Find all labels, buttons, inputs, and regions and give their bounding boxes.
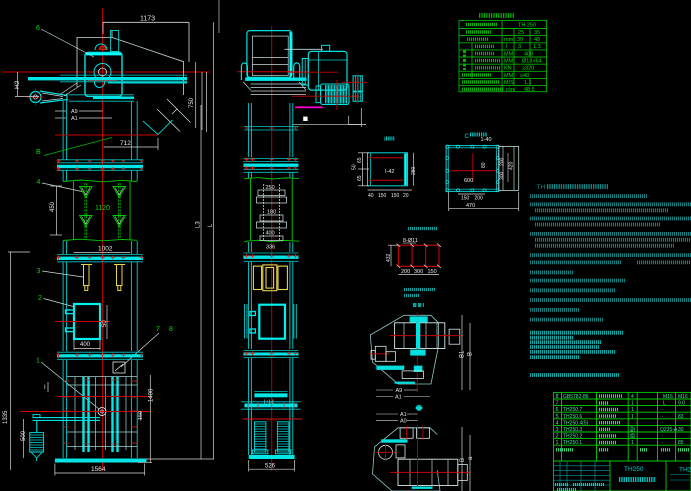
- svg-text:l: l: [506, 44, 507, 50]
- svg-text:180: 180: [267, 210, 276, 216]
- svg-text:≥320: ≥320: [522, 66, 534, 72]
- svg-text:400: 400: [80, 342, 91, 348]
- svg-text:6: 6: [36, 25, 40, 32]
- svg-text:250: 250: [266, 185, 275, 191]
- svg-text:A9: A9: [71, 109, 78, 115]
- svg-text:65: 65: [357, 157, 363, 163]
- svg-text:1: 1: [36, 358, 40, 365]
- svg-text:1.1: 1.1: [524, 80, 532, 86]
- svg-text:9.0: 9.0: [678, 401, 685, 407]
- svg-text:Ø18×64: Ø18×64: [522, 59, 542, 65]
- svg-text:TH250.6: TH250.6: [563, 414, 582, 420]
- svg-text:TH250.4(5): TH250.4(5): [563, 420, 589, 426]
- svg-text:··: ··: [660, 440, 664, 446]
- svg-text:1002: 1002: [98, 246, 113, 253]
- svg-text:470: 470: [466, 203, 475, 209]
- svg-text:1.3: 1.3: [533, 44, 541, 50]
- svg-text:M16: M16: [663, 394, 673, 400]
- svg-text:B: B: [468, 352, 474, 356]
- svg-text:5: 5: [556, 414, 559, 420]
- svg-text:1-40: 1-40: [481, 137, 492, 143]
- svg-text:7: 7: [556, 401, 559, 407]
- svg-text:8: 8: [169, 326, 173, 333]
- svg-text:1400: 1400: [149, 388, 155, 402]
- svg-text:150: 150: [428, 269, 437, 275]
- svg-text:组: 组: [630, 433, 635, 440]
- svg-text:TH: TH: [537, 184, 546, 191]
- svg-text:30: 30: [517, 37, 523, 43]
- svg-text:200: 200: [475, 196, 484, 202]
- svg-text:··: ··: [660, 420, 664, 426]
- svg-text:500: 500: [21, 430, 27, 441]
- svg-text:MM: MM: [504, 73, 514, 79]
- svg-text:1564: 1564: [91, 466, 106, 473]
- svg-text:83: 83: [678, 414, 684, 420]
- svg-text:6: 6: [556, 407, 559, 413]
- svg-text:30: 30: [678, 427, 684, 433]
- svg-text:25: 25: [518, 30, 524, 36]
- svg-text:3: 3: [518, 44, 521, 50]
- svg-text:336: 336: [266, 245, 275, 251]
- svg-text:MM: MM: [504, 51, 514, 57]
- svg-text:450: 450: [50, 201, 56, 212]
- svg-text:280: 280: [411, 166, 417, 175]
- svg-text:I: I: [384, 136, 386, 143]
- svg-text:A1: A1: [71, 116, 78, 122]
- svg-text:··: ··: [660, 407, 664, 413]
- svg-text:L3: L3: [196, 221, 202, 228]
- svg-text:C: C: [465, 134, 470, 140]
- svg-text:85: 85: [678, 440, 684, 446]
- svg-text:B: B: [460, 458, 466, 462]
- svg-text:712: 712: [120, 140, 131, 147]
- svg-text:r/mi: r/mi: [506, 87, 515, 93]
- svg-text:2: 2: [38, 295, 42, 302]
- svg-text:GB5782-86: GB5782-86: [563, 394, 589, 400]
- svg-text:4: 4: [631, 394, 634, 400]
- svg-text:7: 7: [156, 326, 160, 333]
- svg-text:B1: B1: [460, 350, 466, 358]
- svg-text:mm: mm: [504, 37, 514, 43]
- svg-text:1: 1: [631, 401, 634, 407]
- svg-text:TH250.7: TH250.7: [563, 407, 582, 413]
- svg-text:1: 1: [631, 440, 634, 446]
- svg-text:TH250.2: TH250.2: [563, 434, 582, 440]
- svg-text:600: 600: [464, 178, 473, 184]
- svg-text:KN: KN: [504, 66, 512, 72]
- svg-text:4: 4: [37, 179, 41, 186]
- svg-text:150: 150: [378, 193, 387, 199]
- svg-text:TH2: TH2: [679, 467, 691, 474]
- svg-text:400: 400: [524, 51, 533, 57]
- svg-text:50: 50: [102, 320, 108, 327]
- svg-text:526: 526: [265, 464, 276, 470]
- svg-text:Q235-A: Q235-A: [660, 427, 678, 433]
- svg-text:··: ··: [660, 434, 664, 440]
- svg-text:··: ··: [660, 414, 664, 420]
- svg-text:TH250.3: TH250.3: [563, 427, 582, 433]
- svg-text:B: B: [36, 149, 41, 156]
- svg-text:1335: 1335: [3, 410, 9, 424]
- svg-text:432: 432: [386, 253, 392, 262]
- svg-text:M16: M16: [678, 394, 688, 400]
- svg-text:48.5: 48.5: [524, 87, 535, 93]
- svg-text:200: 200: [401, 269, 410, 275]
- svg-text:A1: A1: [400, 412, 407, 418]
- svg-text:1: 1: [631, 407, 634, 413]
- svg-text:3: 3: [37, 268, 41, 275]
- svg-text:1: 1: [631, 414, 634, 420]
- svg-text:A1: A1: [395, 395, 402, 401]
- svg-text:420: 420: [509, 161, 515, 170]
- svg-text:TH 250: TH 250: [518, 23, 536, 29]
- svg-text:I-42: I-42: [385, 169, 394, 175]
- svg-text:150: 150: [138, 411, 144, 420]
- svg-text:80: 80: [481, 162, 487, 168]
- svg-text:A0: A0: [400, 419, 407, 425]
- svg-text:1: 1: [556, 440, 559, 446]
- svg-text:H2: H2: [14, 80, 21, 89]
- svg-text:A9: A9: [396, 388, 403, 394]
- svg-text:300: 300: [500, 171, 506, 180]
- svg-text:20: 20: [403, 193, 409, 199]
- svg-text:200: 200: [500, 157, 506, 166]
- svg-text:50: 50: [352, 164, 358, 170]
- svg-text:M/S: M/S: [504, 80, 514, 86]
- svg-text:4: 4: [556, 420, 559, 426]
- svg-text:3: 3: [556, 427, 559, 433]
- svg-text:35: 35: [534, 30, 540, 36]
- svg-text:L: L: [663, 401, 666, 407]
- svg-text:40: 40: [368, 193, 374, 199]
- svg-text:MM: MM: [504, 59, 514, 65]
- svg-text:48: 48: [534, 37, 540, 43]
- svg-text:2: 2: [556, 434, 559, 440]
- svg-text:TH250: TH250: [624, 466, 644, 473]
- svg-text:65: 65: [357, 175, 363, 181]
- svg-text:≤40: ≤40: [520, 73, 529, 79]
- svg-text:750: 750: [189, 97, 195, 108]
- svg-text:150: 150: [461, 196, 470, 202]
- svg-text:150: 150: [391, 193, 400, 199]
- svg-text:1120: 1120: [95, 205, 110, 212]
- svg-text:8: 8: [556, 394, 559, 400]
- svg-text:副: 副: [630, 426, 635, 433]
- svg-text:400: 400: [266, 231, 275, 237]
- svg-text:300: 300: [414, 269, 423, 275]
- svg-text:1173: 1173: [140, 16, 155, 23]
- svg-text:TH250.1: TH250.1: [563, 440, 582, 446]
